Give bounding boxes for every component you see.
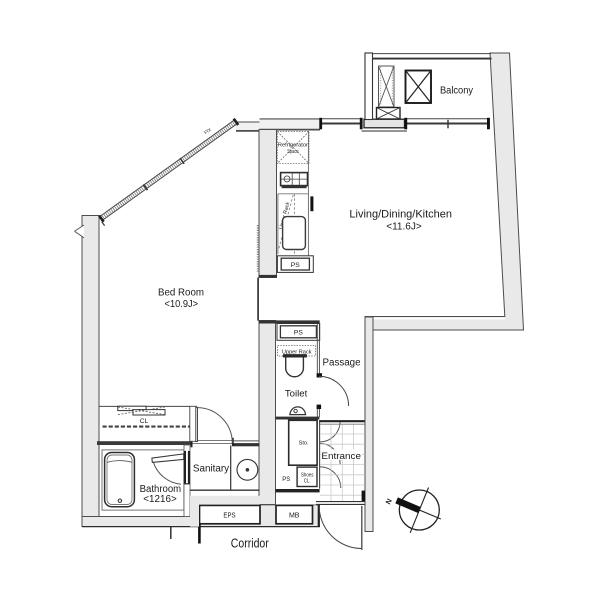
svg-text:Balcony: Balcony [440, 85, 473, 96]
svg-text:Sanitary: Sanitary [193, 464, 229, 475]
svg-text:<11.6J>: <11.6J> [386, 221, 422, 232]
svg-text:<1216>: <1216> [143, 494, 177, 505]
svg-text:Toilet: Toilet [285, 389, 308, 399]
svg-text:<10.9J>: <10.9J> [165, 299, 199, 310]
svg-text:EPS: EPS [223, 512, 235, 519]
svg-text:Refrigerator: Refrigerator [278, 142, 308, 148]
svg-text:PS: PS [294, 329, 304, 336]
svg-text:Shoes: Shoes [301, 472, 314, 478]
svg-text:Passage: Passage [323, 357, 361, 368]
svg-text:Space: Space [287, 149, 298, 155]
svg-text:Sto.: Sto. [299, 440, 309, 446]
svg-text:CL: CL [140, 418, 149, 425]
svg-text:CL.: CL. [304, 479, 311, 485]
svg-text:PS: PS [282, 477, 290, 483]
svg-text:PS: PS [291, 262, 301, 269]
svg-text:Corridor: Corridor [231, 537, 269, 551]
svg-text:Living/Dining/Kitchen: Living/Dining/Kitchen [349, 208, 452, 220]
svg-text:Entrance: Entrance [321, 451, 361, 462]
svg-text:Bed Room: Bed Room [158, 287, 204, 298]
svg-text:MB: MB [289, 512, 300, 519]
